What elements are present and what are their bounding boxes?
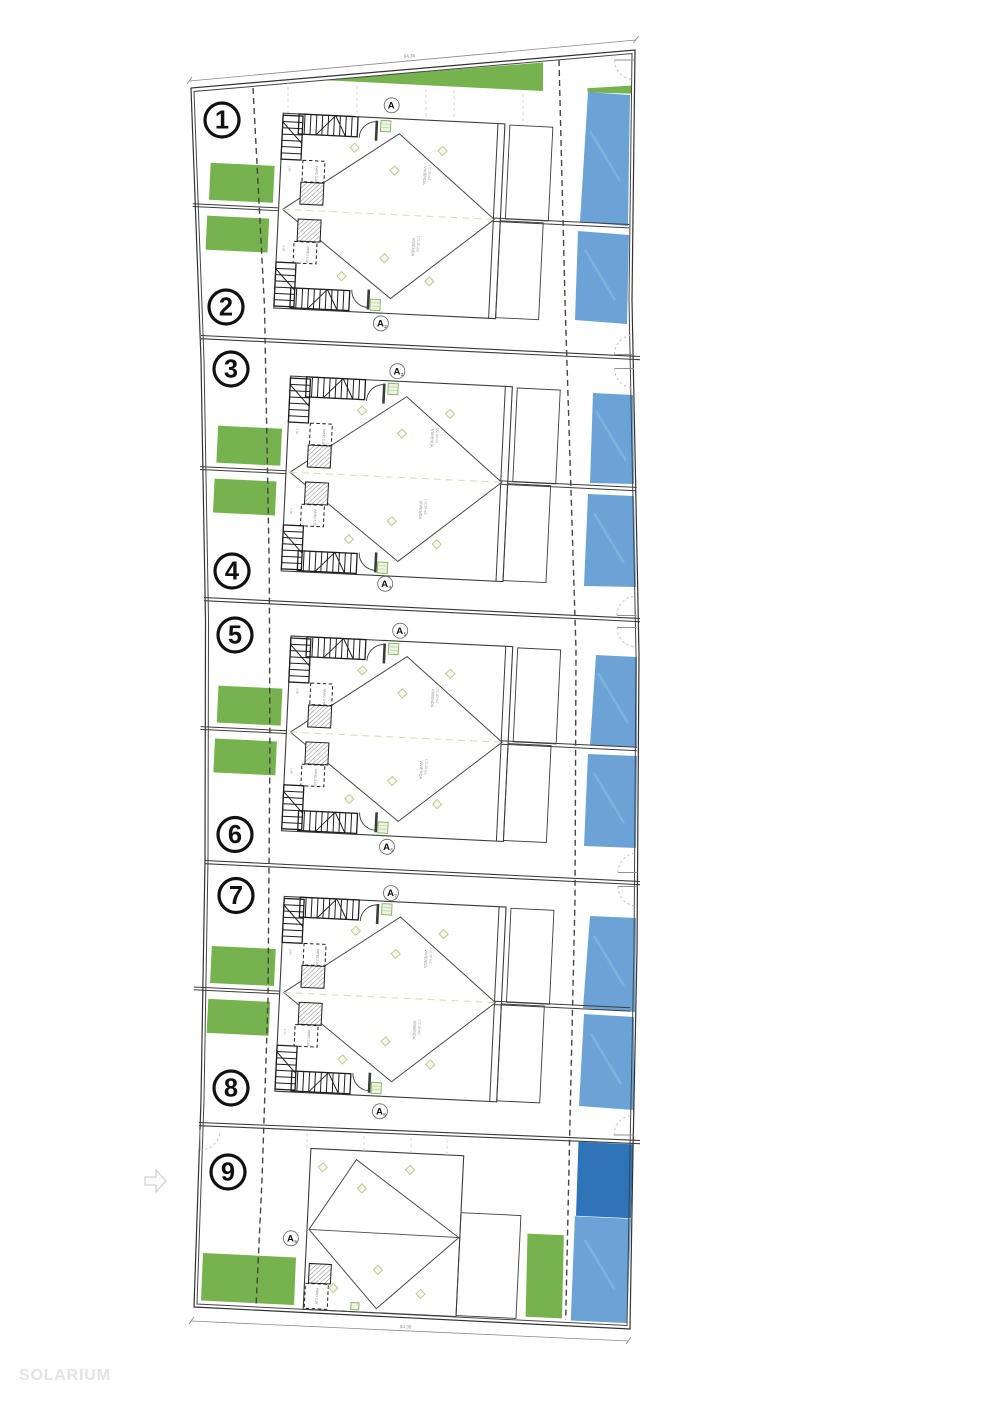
svg-text:6: 6 — [390, 847, 393, 852]
svg-text:3: 3 — [401, 372, 404, 377]
svg-text:SOLARIUM: SOLARIUM — [19, 1367, 111, 1384]
svg-text:5: 5 — [228, 622, 242, 650]
svg-text:A: A — [393, 366, 400, 377]
svg-text:1: 1 — [215, 107, 229, 135]
svg-text:7: 7 — [229, 882, 243, 910]
svg-text:7: 7 — [394, 894, 397, 899]
svg-text:8: 8 — [224, 1075, 238, 1103]
svg-text:9: 9 — [221, 1159, 235, 1187]
svg-text:A: A — [383, 842, 390, 853]
svg-text:A: A — [396, 626, 403, 637]
svg-text:PATIO 3.10: PATIO 3.10 — [314, 1288, 319, 1305]
svg-text:9: 9 — [294, 1239, 297, 1244]
svg-text:A: A — [377, 319, 384, 330]
svg-text:84.35: 84.35 — [400, 1324, 412, 1330]
svg-text:2: 2 — [219, 294, 233, 322]
svg-text:A: A — [388, 101, 395, 112]
svg-text:4: 4 — [225, 558, 240, 586]
svg-text:6: 6 — [228, 821, 242, 849]
svg-text:4: 4 — [389, 584, 392, 589]
svg-text:3: 3 — [224, 356, 238, 384]
svg-text:A: A — [381, 579, 388, 590]
svg-text:A: A — [387, 888, 394, 899]
svg-text:5: 5 — [404, 631, 407, 636]
svg-text:8: 8 — [383, 1112, 386, 1117]
svg-text:A: A — [376, 1107, 383, 1118]
svg-text:A: A — [287, 1234, 294, 1245]
svg-text:2: 2 — [384, 324, 387, 329]
